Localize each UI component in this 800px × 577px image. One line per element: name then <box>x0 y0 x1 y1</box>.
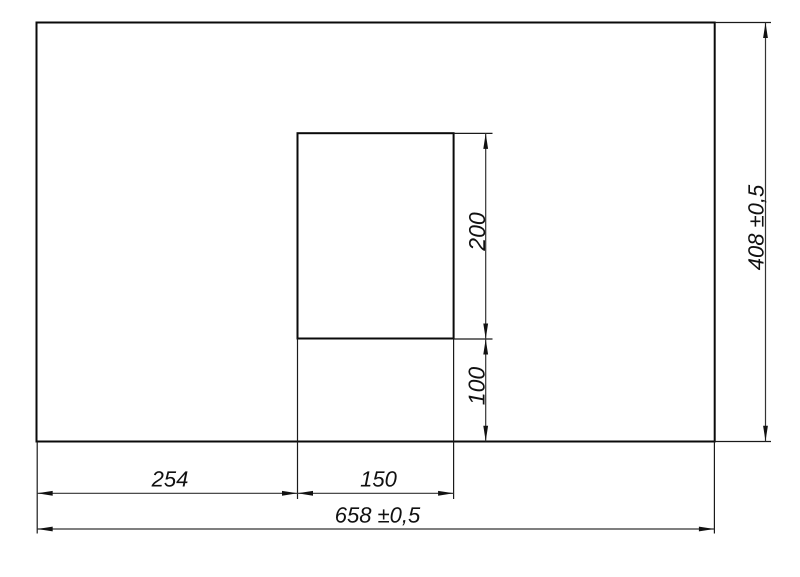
svg-text:658 ±0,5: 658 ±0,5 <box>335 503 421 528</box>
svg-text:100: 100 <box>464 367 490 406</box>
svg-text:150: 150 <box>360 467 397 492</box>
svg-text:254: 254 <box>151 467 189 492</box>
svg-text:200: 200 <box>464 212 490 252</box>
svg-text:408 ±0,5: 408 ±0,5 <box>744 184 769 270</box>
